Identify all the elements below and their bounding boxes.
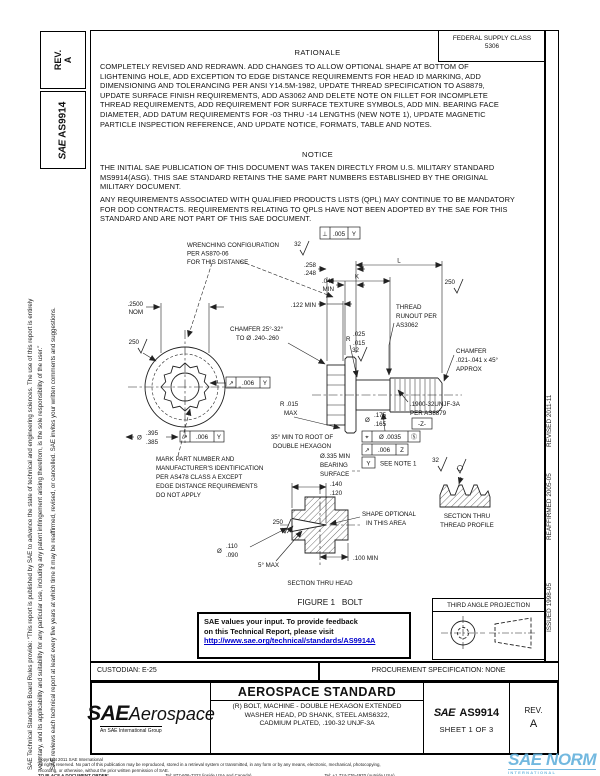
rev-box-value: A (63, 50, 73, 70)
document-type: AEROSPACE STANDARD (211, 683, 423, 701)
projection-label: THIRD ANGLE PROJECTION (433, 599, 544, 612)
sae-norm-watermark: SAE NORM INTERNATIONAL (508, 751, 596, 775)
fcf-runout-y2-datum: Y (217, 434, 221, 441)
notice-paragraph-1: THE INITIAL SAE PUBLICATION OF THIS DOCU… (100, 163, 520, 192)
document-title-line: (R) BOLT, MACHINE - DOUBLE HEXAGON EXTEN… (233, 703, 402, 712)
dim-040-min: MIN (323, 286, 334, 293)
sheet-number: SHEET 1 OF 3 (439, 725, 493, 734)
procurement-cell: PROCUREMENT SPECIFICATION: NONE (318, 662, 559, 681)
runout-note-1: THREAD (396, 304, 422, 311)
issued-date: ISSUED 1998-05 (546, 583, 553, 632)
reaffirmed-date: REAFFIRMED 2005-05 (546, 473, 553, 540)
figure-1-drawing: WRENCHING CONFIGURATION PER AS870-06 FOR… (90, 225, 545, 615)
surf-32: 32 (352, 347, 359, 354)
fsc-label: FEDERAL SUPPLY CLASS (439, 35, 545, 43)
fcf-perp-symbol: ⊥ (322, 231, 327, 238)
mark-note-5: DO NOT APPLY (156, 492, 201, 499)
hole-depth-hi: .140 (330, 481, 343, 488)
document-number: AS9914 (459, 707, 499, 719)
custodian-cell: CUSTODIAN: E-25 (90, 662, 320, 681)
shank-dia-lo: .165 (374, 421, 387, 428)
fillet-r: R (346, 336, 351, 343)
dim-2500: .2500 (128, 301, 144, 308)
datum-y: Y (366, 461, 370, 468)
fcf-runout-z-symbol: ↗ (364, 447, 369, 454)
taper-angle: 5° MAX (258, 562, 279, 569)
feedback-line-1: SAE values your input. To provide feedba… (204, 617, 404, 627)
chamfer-thread-2: .021-.041 x 45° (456, 357, 499, 364)
revised-date: REVISED 2011-11 (546, 395, 553, 447)
doc-number-vertical: AS9914 (58, 101, 69, 137)
fcf-pos-tol: Ø .0035 (379, 434, 402, 441)
chamfer-head-2: TO Ø .240-.260 (236, 335, 279, 342)
shape-note-1: SHAPE OPTIONAL (362, 511, 417, 518)
logo-subtext: An SAE International Group (100, 726, 162, 734)
thread-profile-view (440, 477, 490, 507)
revision-value: A (530, 718, 537, 730)
footer: Copyright 2011 SAE International All rig… (38, 757, 583, 776)
revision-cell: REV. A (510, 683, 557, 753)
wrench-note-2: PER AS870-06 (187, 251, 229, 258)
datum-z: -Z- (418, 421, 426, 428)
runout-note-3: AS3062 (396, 322, 419, 329)
radius-max-2: MAX (284, 410, 297, 417)
runout-note-2: RUNOUT PER (396, 313, 437, 320)
chamfer-thread-1: CHAMFER (456, 348, 487, 355)
feedback-link[interactable]: http://www.sae.org/technical/standards/A… (204, 636, 375, 645)
disclaimer-line: SAE Technical Standards Board Rules prov… (26, 80, 36, 770)
head-od-lo: .385 (146, 439, 159, 446)
document-title-line: CADMIUM PLATED, .190-32 UNJF-3A (233, 720, 402, 729)
dim-040: .040 (322, 278, 335, 285)
figure-caption: FIGURE 1 BOLT (297, 598, 362, 607)
hole-dia-lo: .090 (226, 552, 239, 559)
disclaimer-line: SAE reviews each technical report at lea… (49, 80, 59, 770)
revision-label: REV. (525, 706, 543, 715)
radius-max-1: R .015 (280, 401, 299, 408)
dim-248: .248 (304, 270, 317, 277)
fillet-hi: .025 (353, 331, 366, 338)
surf-250: 250 (129, 339, 140, 346)
hex-angle-1: 35° MIN TO ROOT OF (271, 434, 334, 441)
fcf-runout-z-datum: Z (400, 447, 404, 454)
fcf-runout-y2-tol: .006 (196, 434, 209, 441)
bolt-side-view (312, 357, 462, 433)
dim-L: L (397, 258, 401, 265)
rationale-body: COMPLETELY REVISED AND REDRAWN. ADD CHAN… (100, 62, 514, 129)
sae-logo-small: SAE (58, 140, 69, 159)
chamfer-thread-3: APPROX (456, 366, 482, 373)
document-page: REV. A SAE AS9914 SAE Technical Standard… (0, 0, 600, 776)
date-strip (545, 30, 559, 662)
hole-depth-lo: .120 (330, 490, 343, 497)
mark-note-1: MARK PART NUMBER AND (156, 456, 235, 463)
section-thru-head-view (250, 483, 360, 565)
rev-box-label: REV. (53, 50, 63, 70)
sae-logo-number: SAE (434, 707, 455, 719)
document-title-cell: AEROSPACE STANDARD (R) BOLT, MACHINE - D… (211, 683, 424, 753)
document-title-line: WASHER HEAD, PD SHANK, STEEL AMS6322, (233, 712, 402, 721)
mark-note-4: EDGE DISTANCE REQUIREMENTS (156, 483, 258, 490)
fillet-lo: .015 (353, 340, 366, 347)
surf-250: 250 (445, 279, 456, 286)
disclaimer-line: voluntary, and its applicability and sui… (36, 80, 46, 770)
feedback-line-2: on this Technical Report, please visit (204, 627, 404, 637)
thread-callout-2: PER AS8879 (410, 410, 447, 417)
fcf-runout-y2-symbol: ↗ (182, 434, 187, 441)
see-note-1: SEE NOTE 1 (380, 461, 417, 468)
surf-32: 32 (294, 241, 301, 248)
fcf-pos-symbol: ⌖ (365, 434, 369, 441)
aerospace-logo-text: Aerospace (129, 704, 215, 724)
surf-250: 250 (273, 519, 284, 526)
hole-dia-hi: .110 (226, 543, 238, 550)
bearing-2: BEARING (320, 462, 348, 469)
dim-122-min: .122 MIN (291, 302, 316, 309)
fsc-box: FEDERAL SUPPLY CLASS 5306 (438, 30, 545, 62)
chamfer-head-1: CHAMFER 25°-32° (230, 326, 284, 333)
wrench-note-1: WRENCHING CONFIGURATION (187, 242, 279, 249)
fcf-runout-y-datum: Y (263, 380, 267, 387)
thread-callout-1: .1900-32UNJF-3A (410, 401, 461, 408)
head-od-sym: Ø (137, 435, 142, 442)
notice-title: NOTICE (90, 150, 545, 159)
surf-32: 32 (432, 457, 439, 464)
notice-paragraph-2: ANY REQUIREMENTS ASSOCIATED WITH QUALIFI… (100, 195, 524, 224)
watermark-subtext: INTERNATIONAL (508, 769, 596, 775)
shank-dia-sym: Ø (365, 417, 370, 424)
fcf-pos-mod: Ⓢ (411, 433, 417, 441)
title-block: SAEAerospace An SAE International Group … (90, 681, 559, 755)
watermark-brand: NORM (546, 750, 596, 769)
third-angle-projection-symbol (433, 612, 543, 654)
fcf-perp-datum: Y (352, 231, 356, 238)
dim-100-min: .100 MIN (353, 555, 378, 562)
section-thread-caption-2: THREAD PROFILE (440, 522, 494, 529)
section-thread-caption-1: SECTION THRU (444, 513, 490, 520)
dim-258: .258 (304, 262, 317, 269)
shape-note-2: IN THIS AREA (366, 520, 407, 527)
head-od-hi: .395 (146, 430, 159, 437)
fcf-perp-tol: .005 (333, 231, 346, 238)
left-margin-disclaimer: SAE Technical Standards Board Rules prov… (26, 80, 59, 770)
fcf-runout-z-tol: .006 (378, 447, 391, 454)
dim-2500-nom: NOM (129, 309, 143, 316)
mark-note-3: PER AS478 CLASS A EXCEPT (156, 474, 243, 481)
bearing-1: Ø.335 MIN (320, 453, 350, 460)
fcf-runout-y-tol: .006 (242, 380, 255, 387)
hole-dia-sym: Ø (217, 548, 222, 555)
feedback-box: SAE values your input. To provide feedba… (197, 612, 411, 659)
section-head-caption: SECTION THRU HEAD (287, 580, 353, 587)
dim-K: K (355, 274, 360, 281)
projection-box: THIRD ANGLE PROJECTION (432, 598, 545, 660)
sae-aerospace-logo-cell: SAEAerospace An SAE International Group (92, 683, 211, 753)
sae-logo: SAE (87, 702, 129, 725)
bolt-end-view (128, 330, 242, 444)
fcf-runout-y-symbol: ↗ (228, 380, 233, 387)
wrench-note-3: FOR THIS DISTANCE (187, 259, 248, 266)
shank-dia-hi: .175 (374, 412, 387, 419)
bearing-3: SURFACE (320, 471, 349, 478)
rationale-title: RATIONALE (90, 48, 545, 57)
mark-note-2: MANUFACTURER'S IDENTIFICATION (156, 465, 263, 472)
hex-angle-2: DOUBLE HEXAGON (273, 443, 331, 450)
document-number-cell: SAE AS9914 SHEET 1 OF 3 (424, 683, 510, 753)
watermark-logo: SAE (508, 750, 541, 769)
